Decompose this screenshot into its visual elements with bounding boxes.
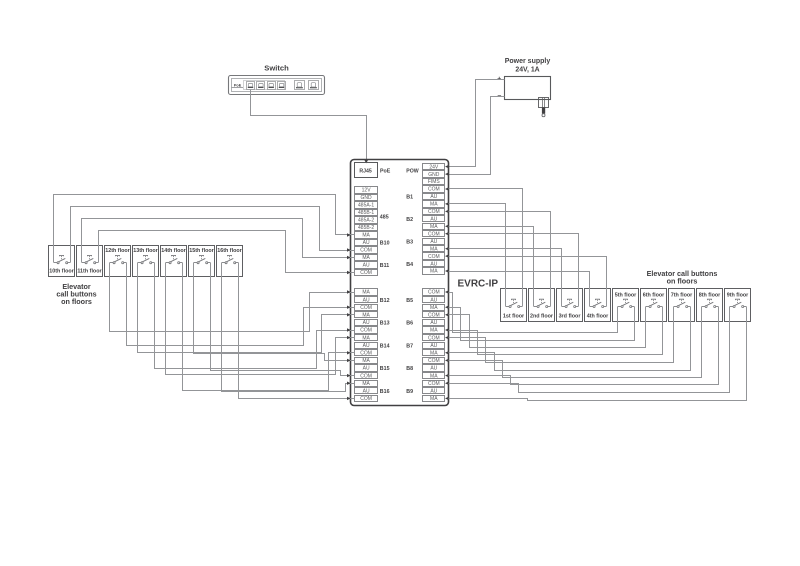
svg-text:MA: MA — [362, 313, 370, 319]
svg-text:MA: MA — [430, 396, 438, 402]
svg-text:Switch: Switch — [264, 64, 289, 73]
svg-text:B15: B15 — [380, 366, 390, 372]
svg-text:AU: AU — [363, 240, 370, 246]
svg-text:4th floor: 4th floor — [587, 313, 609, 319]
svg-text:AU: AU — [363, 297, 370, 303]
svg-text:14th floor: 14th floor — [161, 248, 186, 254]
svg-text:MA: MA — [362, 233, 370, 239]
svg-text:16th floor: 16th floor — [217, 248, 242, 254]
svg-text:MA: MA — [362, 335, 370, 341]
svg-text:12th floor: 12th floor — [105, 248, 130, 254]
svg-text:COM: COM — [428, 209, 440, 215]
svg-text:3rd floor: 3rd floor — [559, 313, 582, 319]
svg-text:Power supply: Power supply — [505, 58, 551, 65]
svg-text:10th floor: 10th floor — [49, 269, 74, 275]
svg-text:AU: AU — [430, 297, 437, 303]
svg-text:485A-1: 485A-1 — [358, 203, 374, 209]
svg-text:COM: COM — [428, 381, 440, 387]
svg-text:GND: GND — [428, 172, 440, 178]
svg-text:COM: COM — [360, 270, 372, 276]
svg-text:6th floor: 6th floor — [643, 292, 665, 298]
svg-text:COM: COM — [428, 290, 440, 296]
svg-text:B13: B13 — [380, 321, 390, 327]
svg-text:COM: COM — [428, 335, 440, 341]
svg-text:B16: B16 — [380, 389, 390, 395]
svg-text:B8: B8 — [406, 366, 413, 372]
svg-text:MA: MA — [430, 328, 438, 334]
svg-text:COM: COM — [360, 396, 372, 402]
svg-text:MA: MA — [430, 224, 438, 230]
svg-text:15th floor: 15th floor — [189, 248, 214, 254]
svg-text:EVRC-IP: EVRC-IP — [458, 279, 499, 290]
svg-text:MA: MA — [430, 373, 438, 379]
svg-text:13th floor: 13th floor — [133, 248, 158, 254]
svg-text:MA: MA — [362, 358, 370, 364]
svg-text:B5: B5 — [406, 298, 413, 304]
svg-text:7th floor: 7th floor — [671, 292, 693, 298]
svg-text:B12: B12 — [380, 298, 390, 304]
svg-text:on floors: on floors — [61, 297, 92, 306]
svg-text:MA: MA — [362, 255, 370, 261]
svg-text:AU: AU — [430, 343, 437, 349]
svg-text:MA: MA — [430, 246, 438, 252]
svg-text:RJ45: RJ45 — [359, 169, 372, 175]
svg-text:B1: B1 — [406, 195, 413, 201]
svg-text:MA: MA — [362, 290, 370, 296]
svg-text:AU: AU — [430, 239, 437, 245]
svg-text:AU: AU — [363, 366, 370, 372]
svg-text:AU: AU — [363, 320, 370, 326]
svg-text:COM: COM — [428, 231, 440, 237]
svg-text:AU: AU — [430, 261, 437, 267]
svg-text:MA: MA — [362, 381, 370, 387]
svg-text:PoE: PoE — [234, 83, 242, 87]
svg-text:GND: GND — [361, 195, 373, 201]
svg-text:COM: COM — [360, 305, 372, 311]
svg-text:COM: COM — [428, 187, 440, 193]
svg-text:B11: B11 — [380, 263, 389, 269]
svg-text:AU: AU — [363, 343, 370, 349]
svg-text:MA: MA — [430, 202, 438, 208]
svg-text:24V, 1A: 24V, 1A — [515, 67, 539, 74]
svg-text:COM: COM — [428, 313, 440, 319]
svg-text:485B-2: 485B-2 — [358, 225, 374, 231]
svg-text:B7: B7 — [406, 343, 413, 349]
svg-text:B4: B4 — [406, 262, 413, 268]
svg-text:B14: B14 — [380, 343, 390, 349]
svg-text:PoE: PoE — [380, 169, 391, 175]
svg-text:B10: B10 — [380, 241, 390, 247]
svg-text:COM: COM — [360, 328, 372, 334]
svg-text:AU: AU — [430, 320, 437, 326]
svg-text:AU: AU — [363, 263, 370, 269]
svg-text:12V: 12V — [362, 188, 372, 194]
svg-text:8th floor: 8th floor — [699, 292, 721, 298]
svg-text:B3: B3 — [406, 239, 413, 245]
svg-text:MA: MA — [430, 269, 438, 275]
svg-text:B2: B2 — [406, 217, 413, 223]
svg-text:COM: COM — [428, 358, 440, 364]
svg-text:POW: POW — [406, 169, 418, 175]
svg-text:COM: COM — [360, 373, 372, 379]
svg-text:B9: B9 — [406, 389, 413, 395]
svg-text:COM: COM — [360, 351, 372, 357]
svg-text:AU: AU — [430, 194, 437, 200]
svg-text:on floors: on floors — [667, 277, 698, 286]
svg-text:485A-2: 485A-2 — [358, 218, 374, 224]
svg-text:485B-1: 485B-1 — [358, 210, 374, 216]
svg-text:AU: AU — [363, 389, 370, 395]
svg-text:485: 485 — [380, 214, 389, 220]
svg-text:MA: MA — [430, 305, 438, 311]
svg-text:24V: 24V — [429, 164, 439, 170]
svg-text:1st floor: 1st floor — [503, 313, 525, 319]
svg-text:AU: AU — [430, 389, 437, 395]
svg-text:FIMS: FIMS — [428, 179, 441, 185]
svg-text:AU: AU — [430, 217, 437, 223]
svg-text:COM: COM — [360, 248, 372, 254]
svg-text:9th floor: 9th floor — [727, 292, 749, 298]
svg-text:AU: AU — [430, 366, 437, 372]
svg-text:11th floor: 11th floor — [77, 269, 102, 275]
svg-text:B6: B6 — [406, 321, 413, 327]
svg-text:MA: MA — [430, 351, 438, 357]
svg-text:COM: COM — [428, 254, 440, 260]
svg-text:5th floor: 5th floor — [615, 292, 637, 298]
svg-text:2nd floor: 2nd floor — [530, 313, 554, 319]
